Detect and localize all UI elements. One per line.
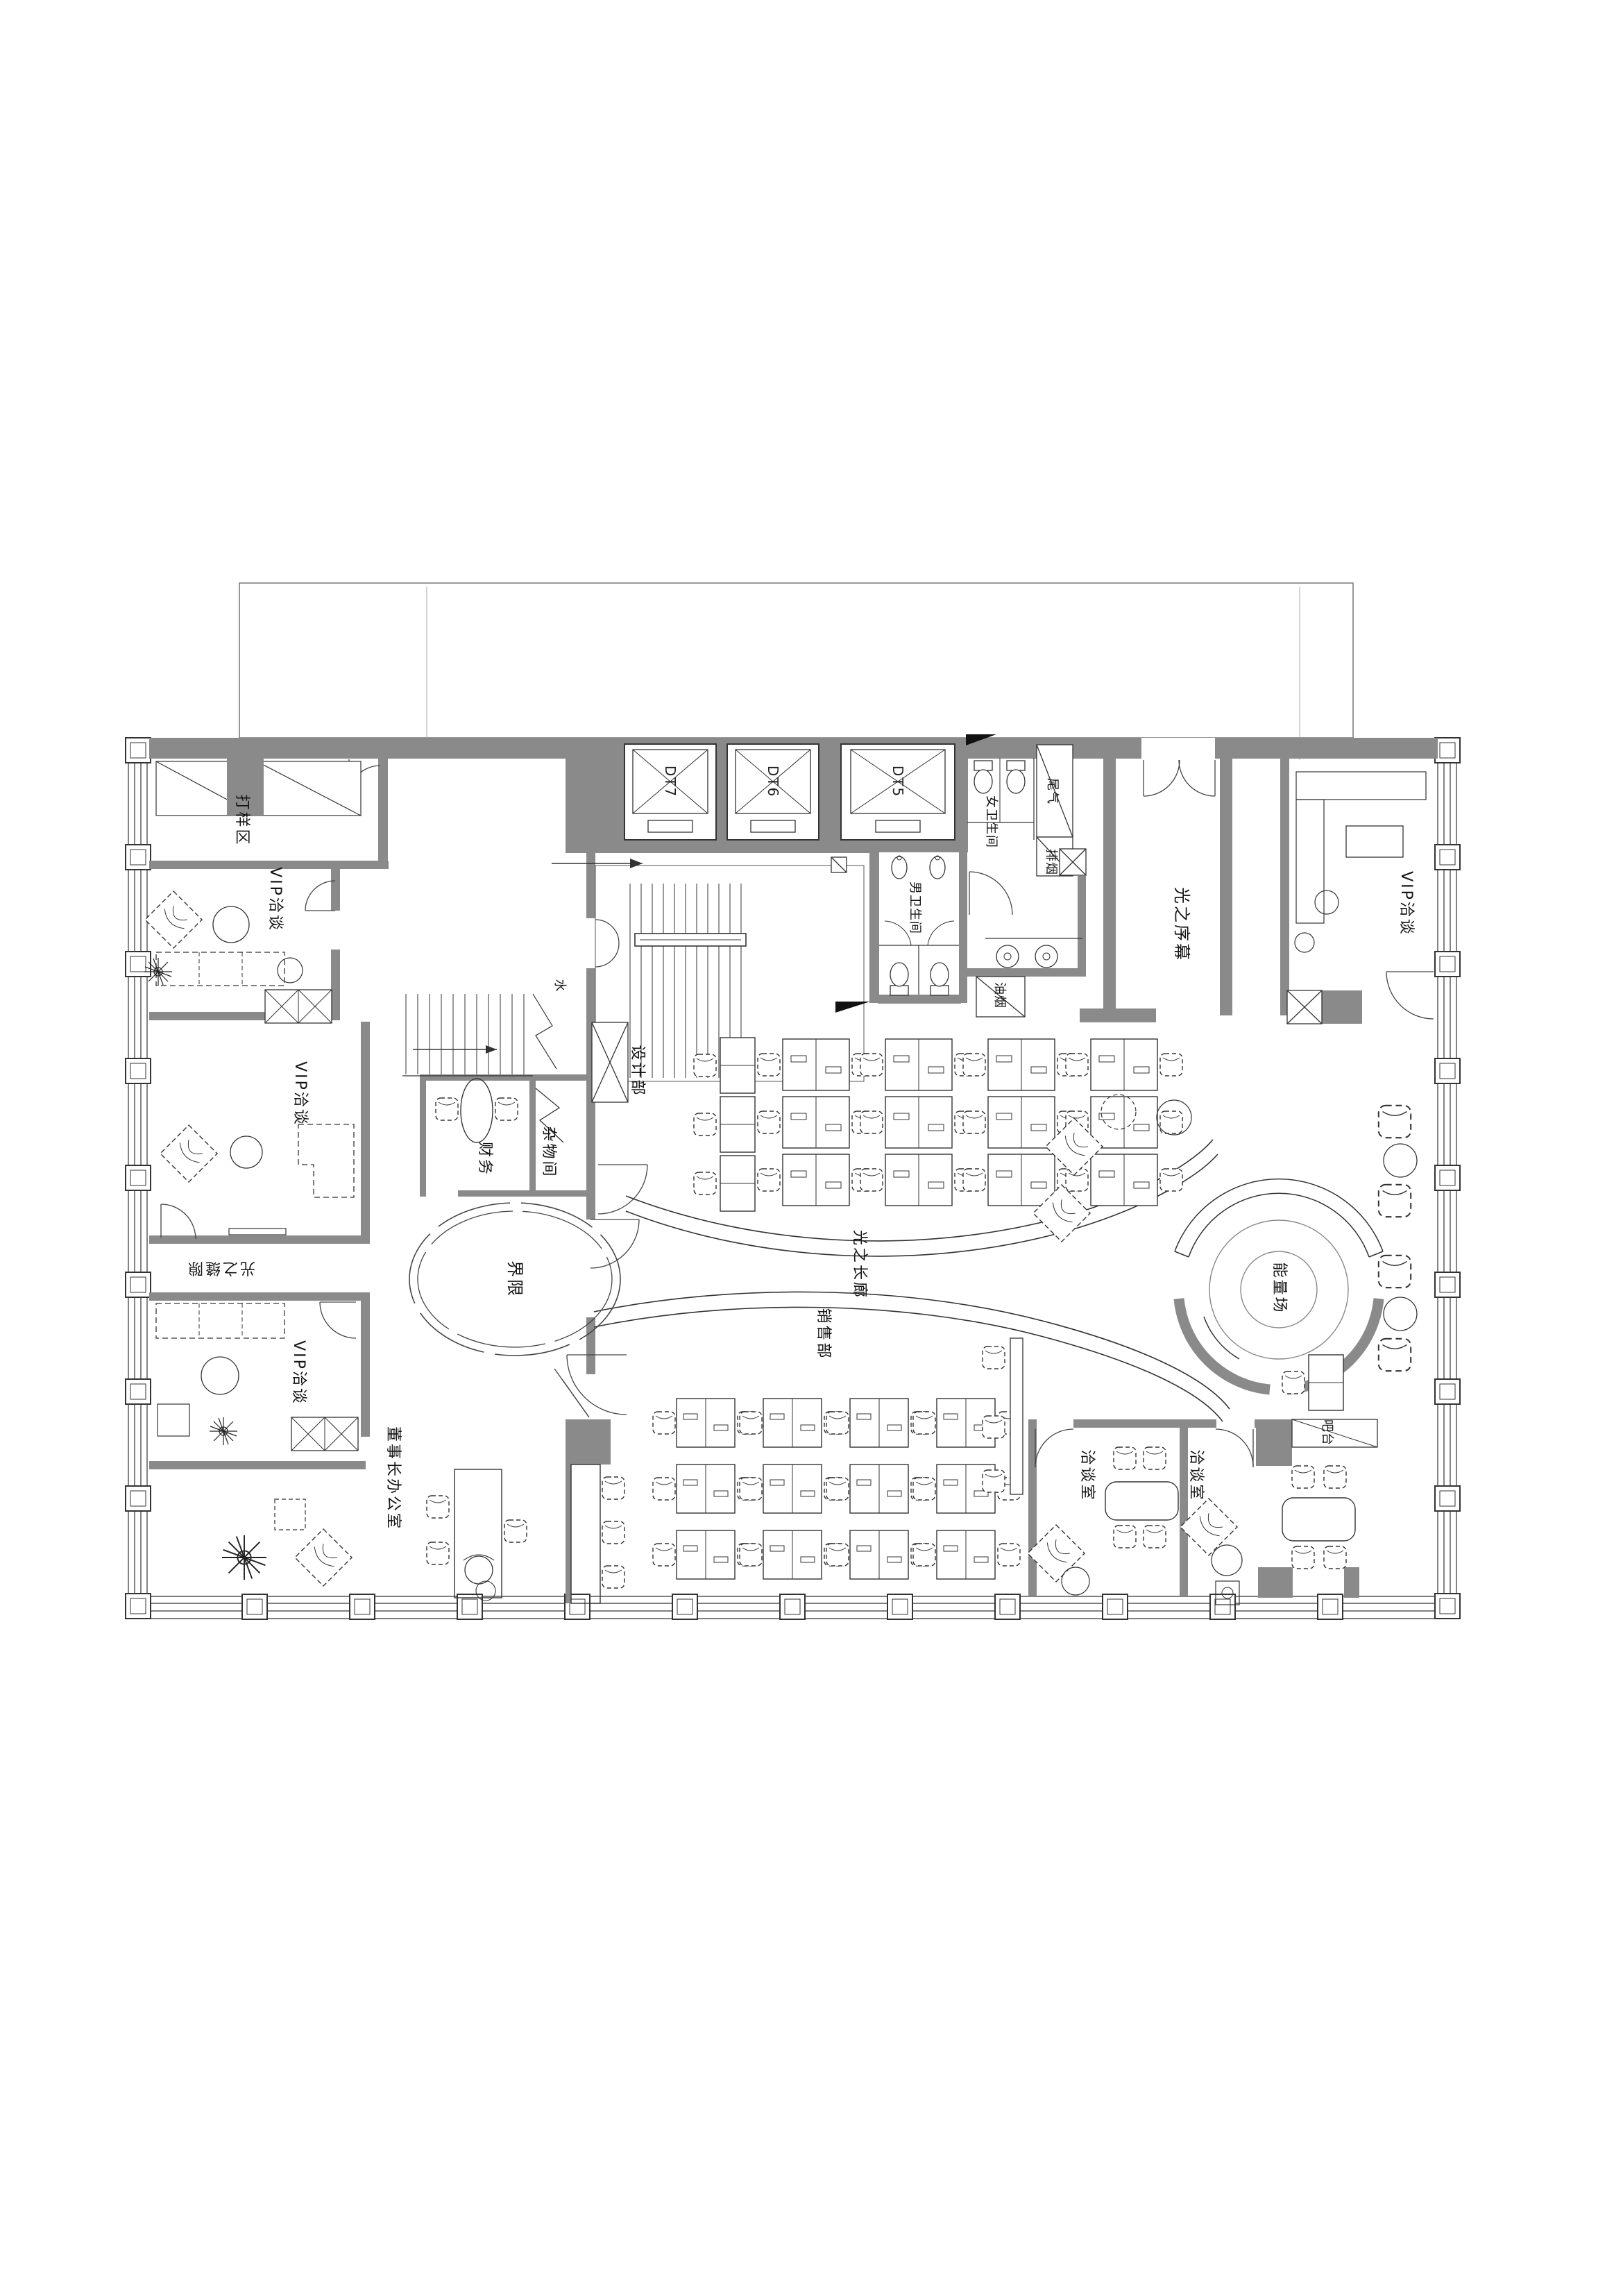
label-exhaust-shaft: 尾气 <box>1046 778 1058 804</box>
room-label-chairman-office: 董事长办公室 <box>385 1426 400 1530</box>
room-label-vip-right: VIP洽谈 <box>1398 871 1413 936</box>
elevator-label-dt6: DT6 <box>766 766 780 797</box>
label-water-shaft: 水 <box>553 979 566 993</box>
room-label-storage: 杂物间 <box>541 1126 556 1178</box>
finance-room-furniture <box>436 1079 518 1142</box>
chairman-office-furniture <box>222 1464 624 1603</box>
meeting-room-1-furniture <box>1028 1447 1178 1595</box>
zone-label-light-corridor: 光之长廊 <box>851 1230 867 1299</box>
room-label-meeting-2: 洽谈室 <box>1188 1449 1203 1501</box>
elevator-label-dt7: DT7 <box>663 766 677 797</box>
room-label-finance: 财务 <box>477 1142 492 1176</box>
upper-floor-outline <box>239 583 1353 760</box>
label-smoke-shaft: 排烟 <box>1044 849 1057 875</box>
zone-label-energy-field: 能量场 <box>1271 1262 1286 1314</box>
label-fume-shaft: 油烟 <box>993 982 1005 1008</box>
vip-room-1-furniture <box>144 891 332 1023</box>
zone-label-light-crevice: 光之缝隙 <box>186 1260 255 1275</box>
room-label-vip-3: VIP洽谈 <box>291 1340 306 1406</box>
secondary-stair <box>402 994 556 1076</box>
room-label-vip-1: VIP洽谈 <box>267 867 282 932</box>
zone-label-boundary: 界限 <box>507 1260 523 1298</box>
vip-room-3-furniture <box>156 1303 358 1451</box>
room-label-vip-2: VIP洽谈 <box>292 1061 307 1126</box>
room-label-mens-restroom: 男卫生间 <box>908 881 921 934</box>
room-label-womens-restroom: 女卫生间 <box>985 795 997 848</box>
room-label-sales-dept: 销售部 <box>815 1308 831 1360</box>
room-label-sample-area: 打样区 <box>234 794 249 846</box>
bar-area-furniture <box>1282 1355 1377 1569</box>
sales-dept-workstations <box>653 1338 1023 1579</box>
room-label-meeting-1: 洽谈室 <box>1079 1449 1094 1501</box>
label-bar-counter: 吧台 <box>1320 1419 1333 1446</box>
meeting-room-2-furniture <box>1180 1499 1242 1605</box>
lounge-seating-right <box>1033 1095 1417 1371</box>
room-label-design-dept: 设计部 <box>629 1045 645 1097</box>
elevator-label-dt5: DT5 <box>891 766 905 797</box>
floorplan-page: 打样区 VIP洽谈 VIP洽谈 VIP洽谈 VIP洽谈 财务 杂物间 设计部 销… <box>0 0 1623 2296</box>
floorplan-drawing <box>0 0 1623 2296</box>
zone-label-light-prologue: 光之序幕 <box>1173 887 1190 962</box>
design-dept-workstations <box>694 1038 1182 1211</box>
